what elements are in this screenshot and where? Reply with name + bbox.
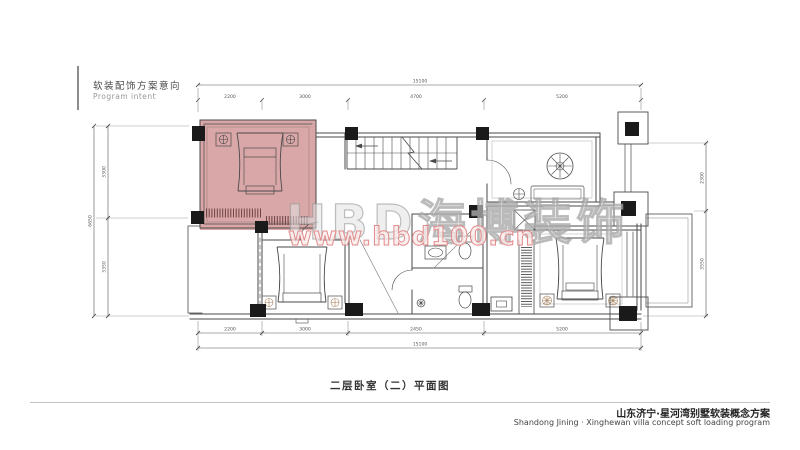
footer-divider xyxy=(30,402,770,403)
dim-label: 2300 xyxy=(700,172,706,184)
stair-arrow-icon xyxy=(429,159,436,164)
watermark-url: www.hbd100.cn xyxy=(288,222,535,252)
floor-drain-icon xyxy=(417,299,425,307)
stairs xyxy=(347,137,457,169)
dim-label: 4700 xyxy=(410,94,422,100)
dim-label: 15100 xyxy=(413,342,428,348)
terrace xyxy=(646,214,692,307)
dim-label: 2200 xyxy=(224,327,236,333)
dim-label: 3350 xyxy=(102,261,108,273)
drawing-sheet: 15100 2200 3000 4700 5200 2200 3000 2450… xyxy=(0,0,800,450)
dim-label: 3550 xyxy=(700,258,706,270)
dim-label: 3000 xyxy=(299,94,311,100)
dim-label: 3300 xyxy=(102,166,108,178)
dim-label: 3000 xyxy=(299,327,311,333)
dim-label: 15100 xyxy=(413,79,428,85)
dim-label: 2200 xyxy=(224,94,236,100)
dim-label: 5200 xyxy=(556,327,568,333)
dim-label: 6650 xyxy=(88,215,94,227)
project-name-en: Shandong Jining · Xinghewan villa concep… xyxy=(514,418,770,427)
bed-lower-left xyxy=(277,247,327,302)
dim-label: 2450 xyxy=(410,327,422,333)
tv-cabinet xyxy=(491,297,512,311)
page-subtitle: Program intent xyxy=(93,92,156,101)
page-title: 软装配饰方案意向 xyxy=(93,78,181,92)
header-accent-bar xyxy=(77,66,79,110)
drawing-title: 二层卧室（二）平面图 xyxy=(285,378,495,393)
plant-icon xyxy=(547,153,573,179)
dim-label: 5200 xyxy=(556,94,568,100)
